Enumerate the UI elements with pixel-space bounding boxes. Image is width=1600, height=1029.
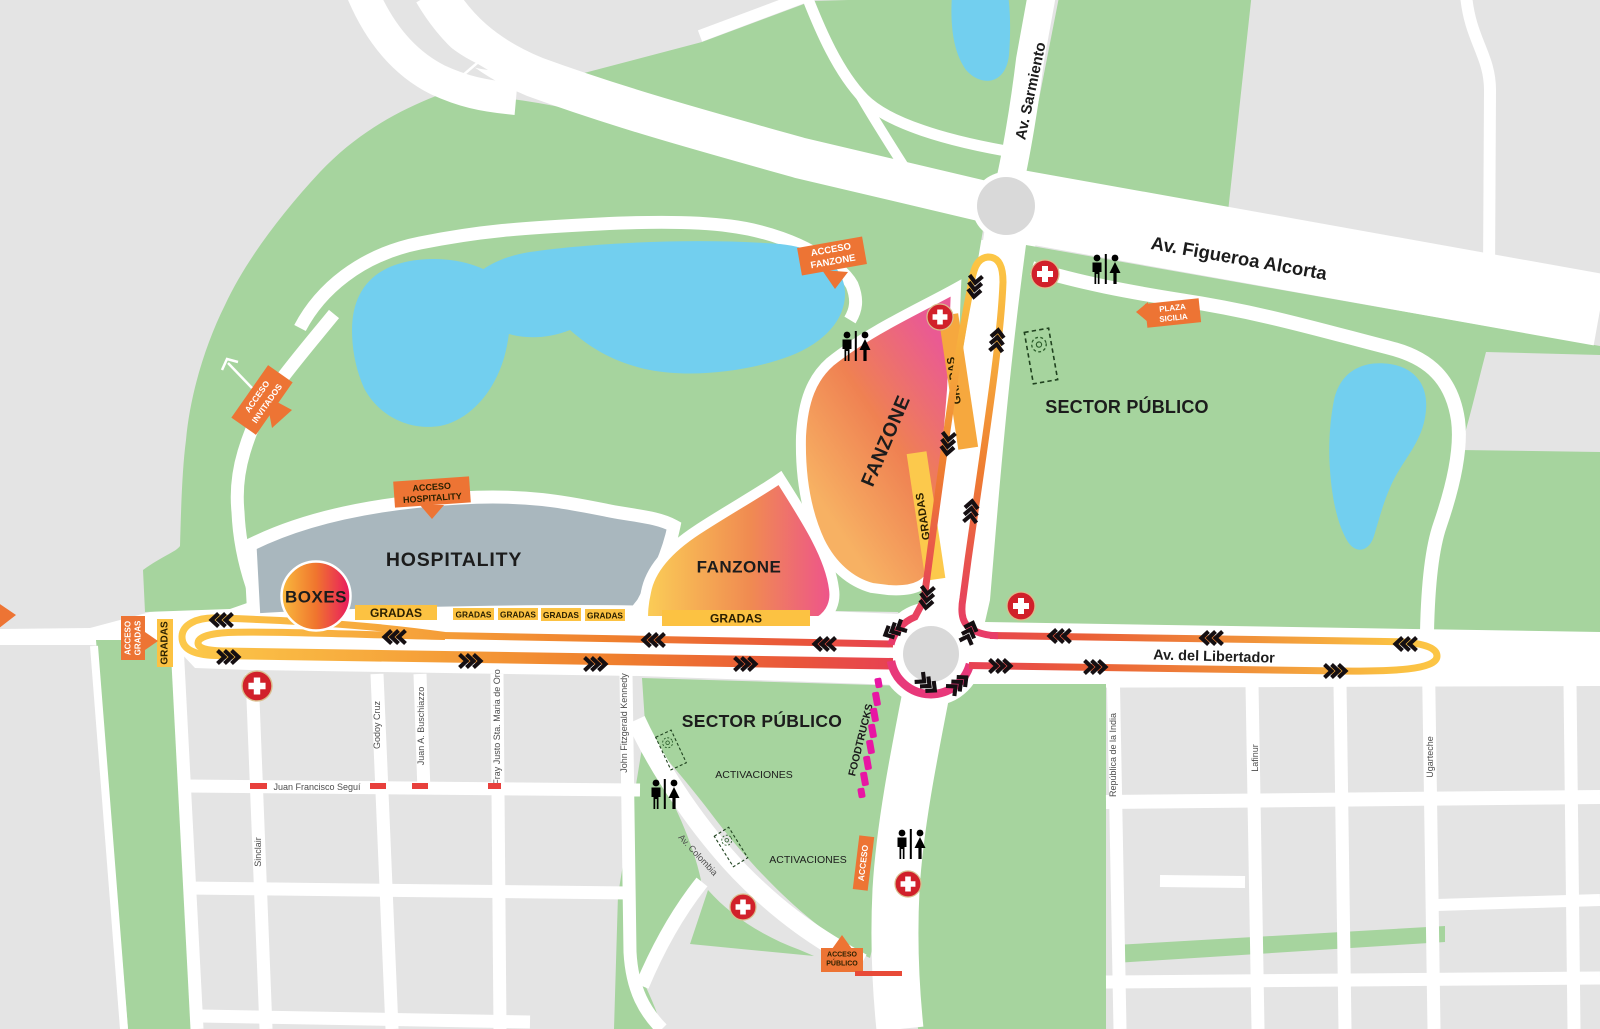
svg-text:ACTIVACIONES: ACTIVACIONES — [715, 769, 792, 781]
svg-text:GRADAS: GRADAS — [500, 610, 536, 620]
svg-text:ACCESO: ACCESO — [827, 952, 858, 959]
svg-text:Lafinur: Lafinur — [1250, 744, 1260, 772]
svg-text:GRADAS: GRADAS — [543, 610, 579, 620]
svg-text:BOXES: BOXES — [285, 588, 347, 607]
svg-text:John Fitzgerald Kennedy: John Fitzgerald Kennedy — [619, 673, 629, 773]
svg-text:Juan A. Buschiazzo: Juan A. Buschiazzo — [416, 687, 426, 766]
svg-text:FANZONE: FANZONE — [697, 558, 782, 577]
svg-text:SECTOR PÚBLICO: SECTOR PÚBLICO — [682, 710, 842, 731]
svg-text:SECTOR PÚBLICO: SECTOR PÚBLICO — [1045, 396, 1208, 417]
svg-text:HOSPITALITY: HOSPITALITY — [386, 549, 522, 571]
svg-text:GRADAS: GRADAS — [710, 612, 762, 626]
svg-text:Fray Justo Sta. Maria de Oro: Fray Justo Sta. Maria de Oro — [492, 669, 502, 785]
svg-text:ACCESO: ACCESO — [124, 621, 133, 655]
svg-text:Sinclair: Sinclair — [253, 837, 263, 867]
svg-text:Ugarteche: Ugarteche — [1425, 736, 1435, 778]
svg-text:República de la India: República de la India — [1108, 713, 1118, 797]
svg-text:Godoy Cruz: Godoy Cruz — [372, 700, 382, 749]
svg-text:Av. del Libertador: Av. del Libertador — [1153, 647, 1275, 666]
svg-text:GRADAS: GRADAS — [134, 620, 143, 655]
svg-text:Juan Francisco Seguí: Juan Francisco Seguí — [273, 782, 361, 792]
svg-text:GRADAS: GRADAS — [370, 606, 422, 620]
svg-text:GRADAS: GRADAS — [587, 611, 623, 621]
svg-text:ACTIVACIONES: ACTIVACIONES — [769, 854, 846, 866]
svg-text:PÚBLICO: PÚBLICO — [826, 959, 858, 968]
svg-text:GRADAS: GRADAS — [160, 621, 171, 665]
svg-text:GRADAS: GRADAS — [456, 610, 492, 620]
